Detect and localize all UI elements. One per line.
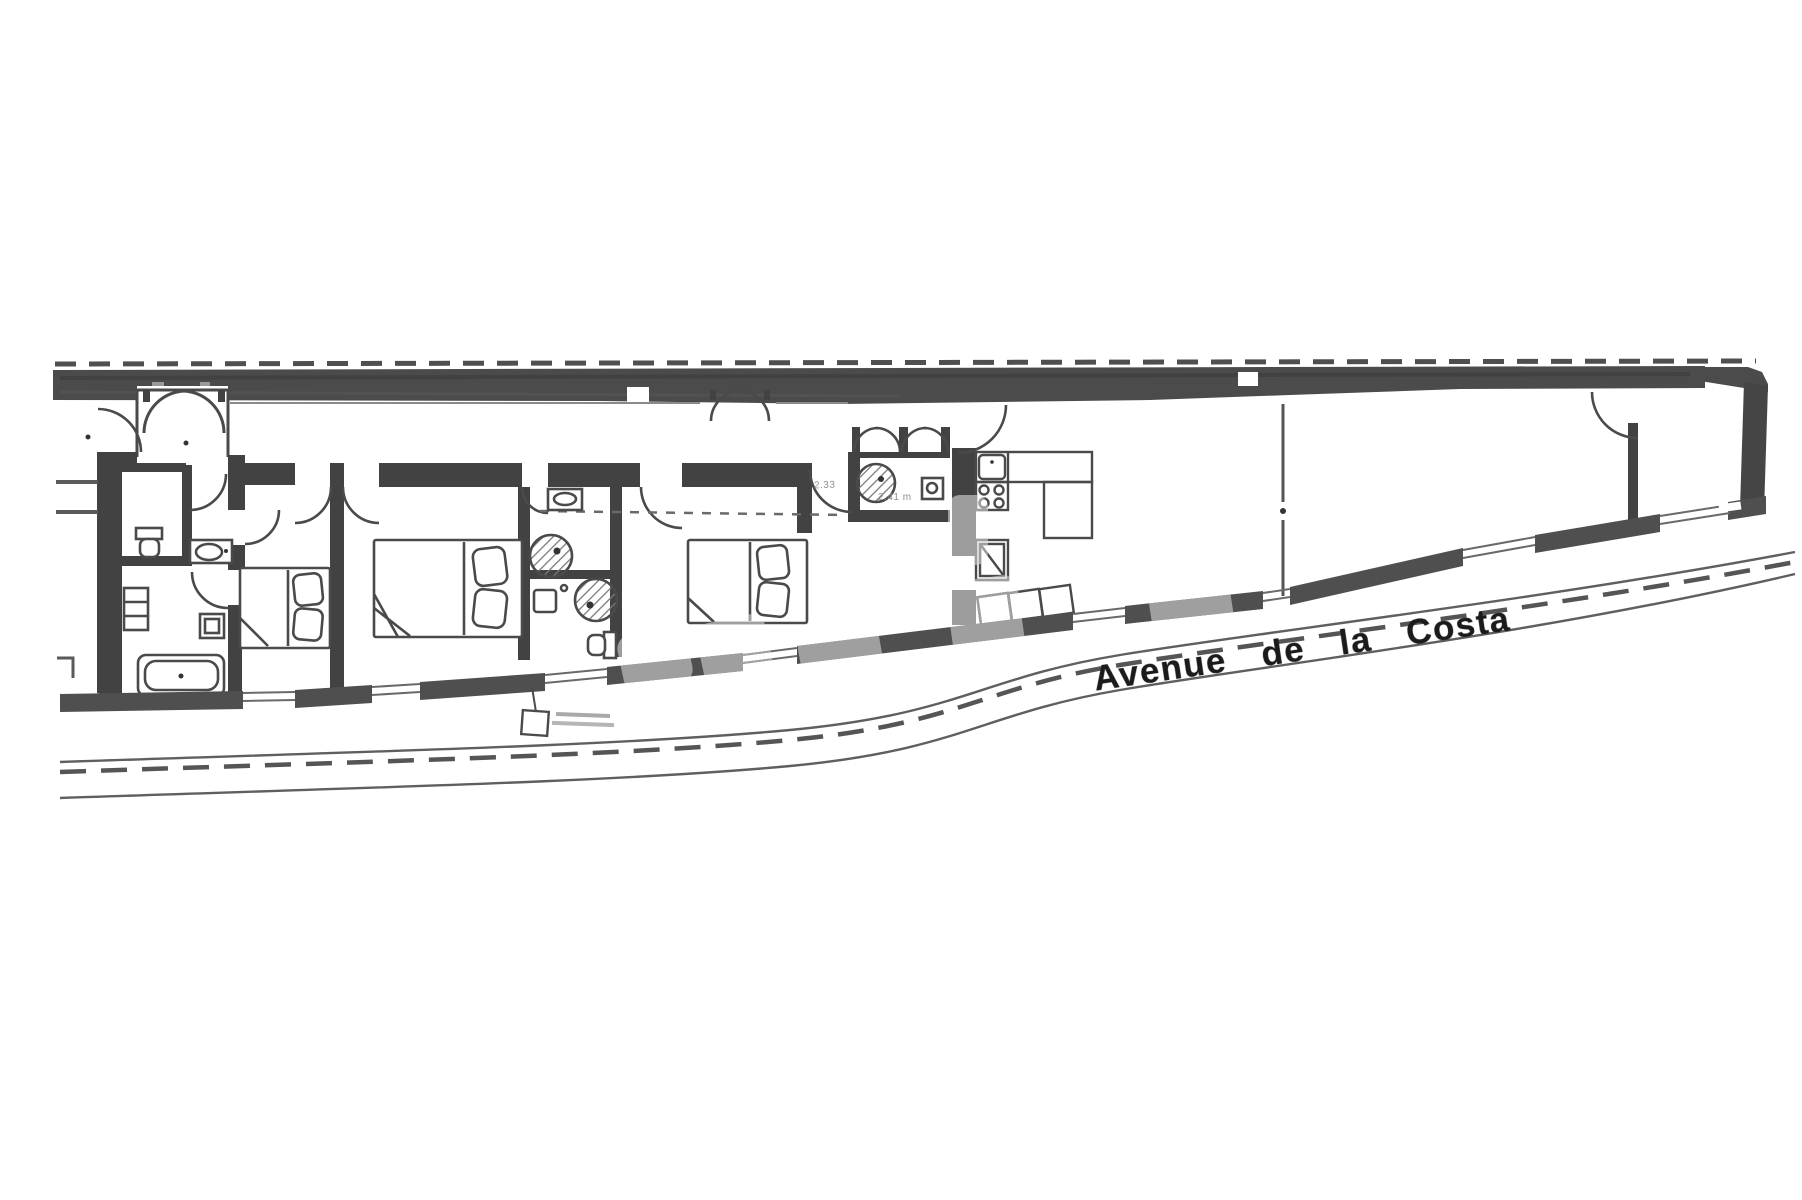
floorplan-drawing — [0, 0, 1802, 1200]
shower-circle-2 — [575, 579, 617, 621]
bed-3-icon — [688, 540, 807, 623]
kitchen-counter — [976, 452, 1092, 482]
bed-1-icon — [240, 568, 330, 648]
shower-room-2-fixtures — [534, 579, 617, 658]
left-bracket-mark — [57, 658, 73, 678]
bed-2-icon — [374, 540, 522, 637]
washbasin-icon — [190, 540, 232, 563]
shower-circle-1 — [530, 535, 572, 577]
boundary-band — [53, 366, 1705, 404]
shower-room-1-fixtures — [530, 489, 582, 577]
vestibule-door-arc — [641, 487, 682, 528]
top-boundary-wall — [53, 361, 1768, 512]
dimension-note-1: 2.33 — [814, 480, 836, 492]
toilet-2-icon — [588, 632, 616, 658]
kitchen-island — [1044, 482, 1092, 538]
wc-door-arc — [190, 474, 226, 510]
dimension-note-2: 2.41 m — [878, 492, 912, 503]
facade-annotation — [521, 687, 614, 736]
kitchen-sink-icon — [979, 455, 1005, 479]
door-arc-left-of-porch — [98, 409, 141, 452]
boundary-tick-marks — [55, 361, 1756, 364]
bedroom1-door-arc — [245, 510, 279, 544]
wc-shower-door-arc-2 — [876, 428, 900, 452]
kitchen-door-arc — [958, 405, 1006, 453]
toilet-icon — [136, 528, 162, 557]
bedroom2-corridor-door-arc — [343, 487, 379, 523]
bathtub-icon — [138, 655, 224, 696]
left-exterior-wall — [97, 452, 122, 697]
bathroom-door-arc — [192, 572, 228, 608]
living-room-joint-line — [1280, 404, 1286, 596]
bedroom1-corridor-door-arc — [295, 487, 331, 523]
floorplan-page: Avenue de la Costa 2.33 2.41 m — [0, 0, 1802, 1200]
right-exterior-wall — [1740, 382, 1768, 512]
